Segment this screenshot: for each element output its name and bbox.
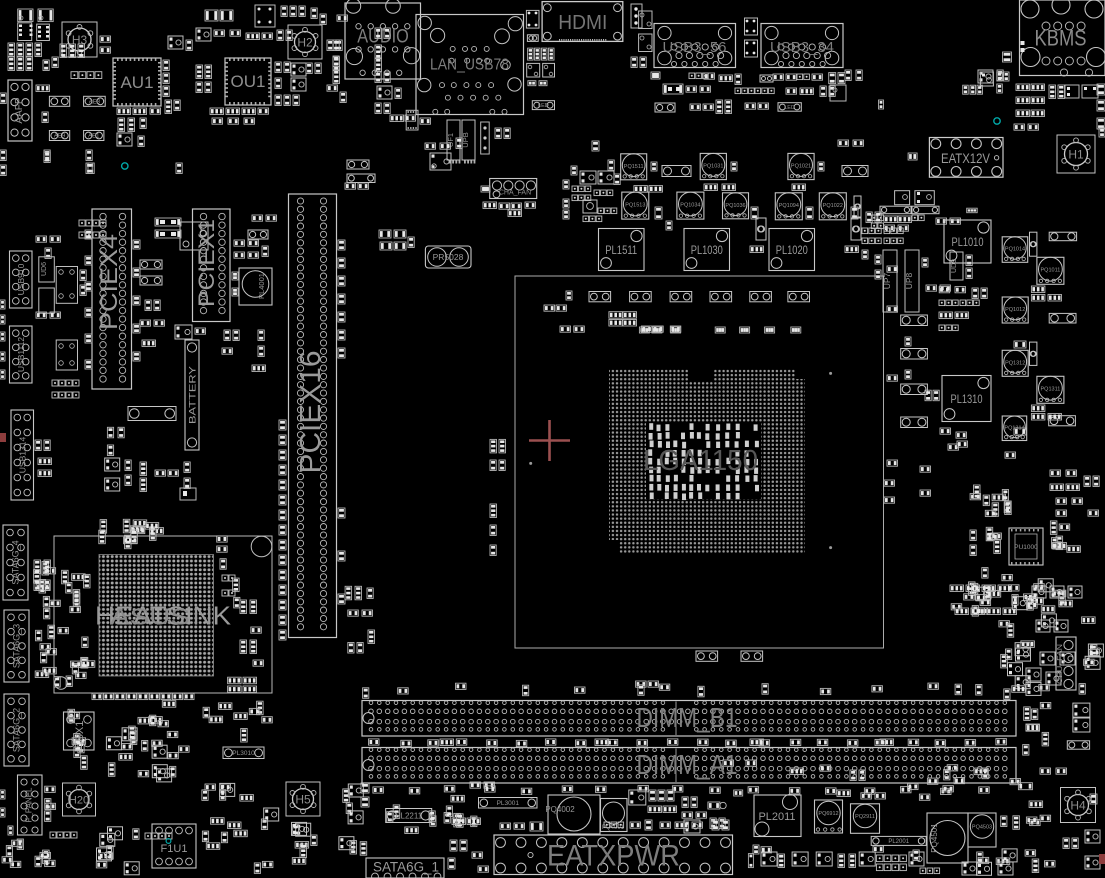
svg-text:CPU_FAN: CPU_FAN <box>1055 644 1064 684</box>
svg-text:PL3001: PL3001 <box>497 800 520 807</box>
svg-text:PQ4501: PQ4501 <box>930 823 939 853</box>
svg-text:PQ1014: PQ1014 <box>1005 247 1025 253</box>
svg-text:PL2211: PL2211 <box>395 811 423 820</box>
svg-text:USB1314: USB1314 <box>17 437 27 474</box>
svg-text:H3: H3 <box>72 33 88 47</box>
svg-text:PQ1012: PQ1012 <box>1005 307 1025 313</box>
svg-text:CHA_FAN: CHA_FAN <box>499 190 531 197</box>
svg-text:SATA6G_3: SATA6G_3 <box>12 624 22 668</box>
svg-text:LED: LED <box>538 103 549 109</box>
svg-text:PCIEX4: PCIEX4 <box>96 234 123 330</box>
svg-text:AE1: AE1 <box>88 134 100 140</box>
svg-text:AAFP: AAFP <box>14 97 25 123</box>
svg-text:PQ1031: PQ1031 <box>703 164 723 170</box>
svg-text:UP8: UP8 <box>904 272 914 289</box>
svg-text:AU1: AU1 <box>120 73 153 92</box>
svg-text:SX1: SX1 <box>74 721 86 742</box>
svg-text:LGA1150: LGA1150 <box>643 445 758 477</box>
svg-text:PQ1034: PQ1034 <box>680 203 700 209</box>
svg-text:EATXPWR: EATXPWR <box>547 840 680 873</box>
svg-text:PQ1036: PQ1036 <box>725 203 745 209</box>
svg-text:DIMM_B1: DIMM_B1 <box>637 702 738 733</box>
svg-text:H5: H5 <box>295 792 311 806</box>
svg-text:PQ1094: PQ1094 <box>779 203 799 209</box>
svg-text:OU1: OU1 <box>231 72 266 91</box>
svg-text:SATA6G_1: SATA6G_1 <box>373 860 439 875</box>
svg-text:UP7: UP7 <box>882 272 892 289</box>
svg-text:H20: H20 <box>69 795 89 807</box>
svg-text:USB3_56: USB3_56 <box>663 39 727 56</box>
svg-text:PQ1311: PQ1311 <box>1041 387 1061 393</box>
svg-text:DIMM_A1: DIMM_A1 <box>637 749 738 780</box>
svg-text:ASUS: ASUS <box>110 604 190 630</box>
svg-text:PL1020: PL1020 <box>776 243 808 257</box>
svg-text:H1: H1 <box>1068 147 1084 161</box>
svg-text:AE3: AE3 <box>89 100 101 106</box>
svg-text:AUDIO: AUDIO <box>357 26 409 48</box>
svg-text:SATA6G_2: SATA6G_2 <box>12 708 22 752</box>
svg-text:USB1112: USB1112 <box>16 337 26 372</box>
svg-text:PQ1021: PQ1021 <box>791 164 811 170</box>
svg-text:PQ1312: PQ1312 <box>1005 360 1025 366</box>
svg-text:USB910: USB910 <box>16 263 26 295</box>
svg-text:LED: LED <box>784 105 795 111</box>
svg-text:PQ1511: PQ1511 <box>624 164 644 170</box>
svg-text:USB3_34: USB3_34 <box>770 39 834 56</box>
svg-text:PQ1022: PQ1022 <box>823 203 843 209</box>
svg-text:PL2011: PL2011 <box>758 811 795 823</box>
svg-text:HDMI: HDMI <box>558 11 607 34</box>
svg-text:LAN_USB78: LAN_USB78 <box>430 57 509 74</box>
svg-text:PL4001: PL4001 <box>257 273 266 299</box>
svg-text:EATX12V: EATX12V <box>941 150 991 166</box>
svg-text:PL1030: PL1030 <box>691 243 723 257</box>
svg-text:PR5028: PR5028 <box>433 252 464 262</box>
svg-text:PCIEX16: PCIEX16 <box>295 351 327 474</box>
svg-text:PL1010: PL1010 <box>952 235 984 249</box>
svg-text:BATTERY: BATTERY <box>188 366 198 424</box>
svg-text:F_PANEL: F_PANEL <box>25 787 34 823</box>
svg-text:PQ6912: PQ6912 <box>818 811 838 817</box>
svg-text:PL1511: PL1511 <box>605 243 637 257</box>
svg-text:UD6: UD6 <box>41 262 48 276</box>
svg-text:PQ4002: PQ4002 <box>545 805 575 814</box>
svg-text:PQ1011: PQ1011 <box>1041 268 1061 274</box>
svg-text:H2: H2 <box>297 35 313 49</box>
svg-text:PCIEX1: PCIEX1 <box>194 219 219 307</box>
svg-text:AE9: AE9 <box>54 134 66 140</box>
svg-text:PL3010: PL3010 <box>232 750 255 757</box>
svg-text:PU1000: PU1000 <box>1014 544 1038 551</box>
svg-text:PQ1513: PQ1513 <box>625 203 645 209</box>
svg-text:PL2001: PL2001 <box>888 839 909 845</box>
svg-text:PQ4503: PQ4503 <box>972 825 992 831</box>
svg-text:H4: H4 <box>1070 798 1086 812</box>
svg-text:PQ2911: PQ2911 <box>855 814 875 820</box>
svg-text:KBMS: KBMS <box>1035 26 1087 51</box>
svg-text:PL1310: PL1310 <box>951 392 983 406</box>
svg-text:F1U1: F1U1 <box>161 843 188 855</box>
svg-text:SATA6G_4: SATA6G_4 <box>11 540 21 584</box>
